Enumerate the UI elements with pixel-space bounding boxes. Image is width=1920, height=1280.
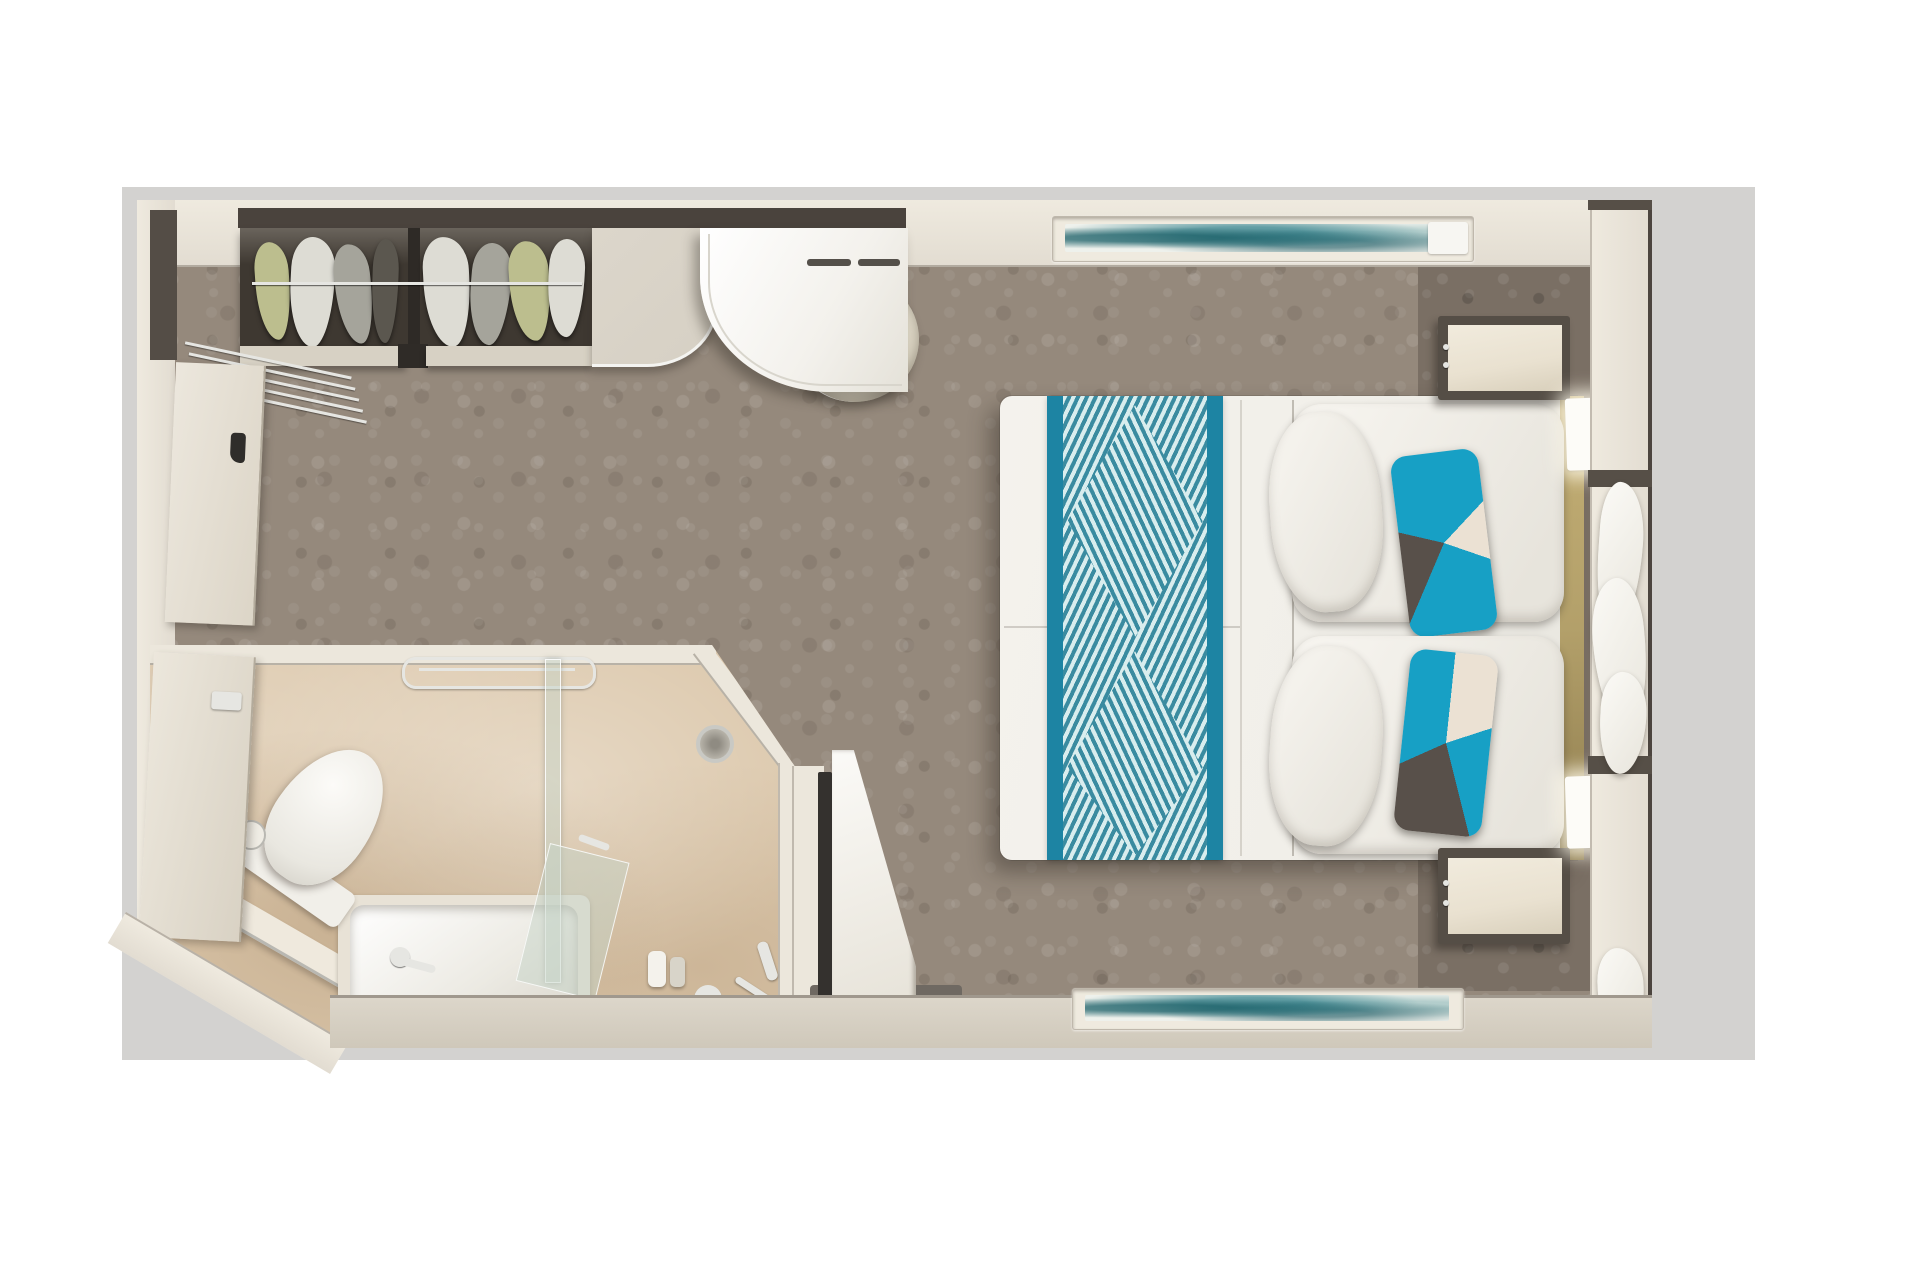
bottom-wall [330, 995, 1652, 1048]
artwork-bottom-frame [1072, 988, 1464, 1030]
garment [287, 236, 337, 348]
bathroom-door [139, 652, 256, 942]
garment [253, 241, 294, 341]
duvet-fold-line [1240, 400, 1242, 856]
towel-bar [402, 657, 596, 689]
curtains [1592, 482, 1650, 774]
closet-door-gap [398, 344, 428, 368]
tv-screen [818, 772, 832, 1010]
door-hinge [211, 691, 242, 711]
artwork-bottom-canvas [1085, 995, 1449, 1021]
nightstand-top-frame [1438, 316, 1570, 400]
entry-door-handle [230, 433, 246, 464]
garment [331, 242, 377, 345]
window-mullion [1588, 200, 1652, 210]
closet-front-panel [426, 346, 592, 366]
entry-wall-return [150, 210, 177, 360]
garment [370, 239, 400, 344]
desk-slot [807, 259, 851, 266]
garment [507, 240, 554, 343]
garment [421, 236, 473, 348]
entry-door [165, 362, 266, 626]
artwork-top-canvas [1065, 224, 1459, 252]
vanity-counter [592, 228, 717, 367]
ceiling-light-panel [1428, 222, 1468, 254]
garment [545, 238, 586, 338]
nightstand [1448, 325, 1562, 391]
closet-rod [252, 282, 582, 285]
bed-runner [1047, 396, 1223, 860]
closet-divider [408, 228, 420, 350]
garment [466, 241, 515, 346]
nightstand-bottom-frame [1438, 848, 1570, 944]
nightstand [1448, 858, 1562, 934]
desk-slot [858, 259, 900, 266]
shower-drain [696, 725, 734, 763]
floor-plan-canvas [0, 0, 1920, 1280]
closet [240, 228, 592, 350]
artwork-top-frame [1052, 216, 1474, 262]
closet-fascia-strip [238, 208, 906, 228]
